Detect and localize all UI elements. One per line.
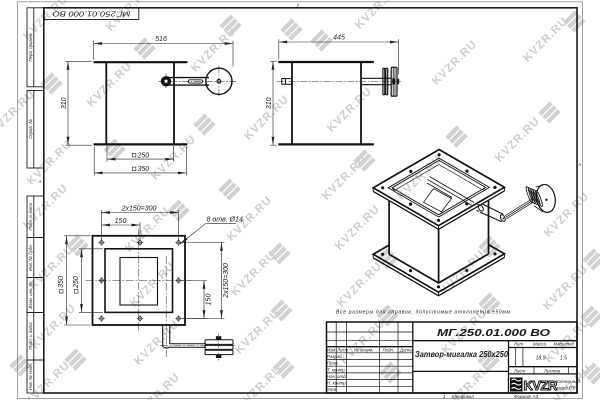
svg-text:KVZR.RU: KVZR.RU <box>29 302 79 352</box>
svg-text:KVZR: KVZR <box>524 378 559 393</box>
svg-text:150: 150 <box>206 294 213 306</box>
svg-text:250: 250 <box>73 276 80 289</box>
svg-text:Листов: Листов <box>543 368 561 373</box>
svg-text:1: 1 <box>443 394 446 399</box>
svg-text:KVZR.RU: KVZR.RU <box>128 260 178 310</box>
svg-text:МГ.250.01.000 ВО: МГ.250.01.000 ВО <box>437 328 550 339</box>
svg-text:Затвор-мигалка 250х250: Затвор-мигалка 250х250 <box>415 349 508 359</box>
svg-text:Разраб.: Разраб. <box>327 354 343 359</box>
svg-text:18,9: 18,9 <box>536 356 546 362</box>
svg-text:Т. контр.: Т. контр. <box>327 367 346 372</box>
svg-text:завод РЗП: завод РЗП <box>555 386 578 391</box>
svg-text:310: 310 <box>61 97 68 109</box>
svg-text:KVZR.RU: KVZR.RU <box>325 85 375 135</box>
svg-text:2х150=300: 2х150=300 <box>223 263 230 299</box>
svg-text:Инв. № дубл.: Инв. № дубл. <box>28 244 33 271</box>
svg-text:310: 310 <box>266 97 273 109</box>
svg-text:250: 250 <box>137 152 150 159</box>
svg-text:Н. контр.: Н. контр. <box>327 381 347 386</box>
svg-text:Дата: Дата <box>399 347 412 352</box>
svg-text:Копировал: Копировал <box>452 394 474 399</box>
svg-text:А: А <box>577 162 581 167</box>
svg-text:Лист: Лист <box>513 368 526 373</box>
svg-text:1:5: 1:5 <box>560 356 567 362</box>
svg-text:Масса: Масса <box>533 342 547 347</box>
svg-text:Котельный: Котельный <box>556 379 580 384</box>
svg-text:Подп.: Подп. <box>383 347 395 352</box>
svg-text:350: 350 <box>138 166 150 173</box>
svg-text:Перв. примен.: Перв. примен. <box>28 32 33 61</box>
svg-text:KVZR.RU: KVZR.RU <box>430 38 480 88</box>
svg-text:Взам. инв. №: Взам. инв. № <box>28 281 33 308</box>
svg-text:Формат А3: Формат А3 <box>514 394 539 399</box>
svg-text:Утв.: Утв. <box>327 387 337 392</box>
svg-text:Подп. и дата: Подп. и дата <box>28 202 33 230</box>
svg-text:KVZR.RU: KVZR.RU <box>335 260 385 310</box>
svg-text:Масштаб: Масштаб <box>554 342 575 347</box>
svg-text:Лист: Лист <box>336 347 349 352</box>
svg-text:МГ.250.01.000 ВО: МГ.250.01.000 ВО <box>52 9 131 16</box>
svg-text:445: 445 <box>333 35 345 42</box>
svg-text:KVZR.RU: KVZR.RU <box>521 15 571 65</box>
svg-text:KVZR.RU: KVZR.RU <box>353 0 403 32</box>
svg-text:у: у <box>296 2 300 7</box>
svg-text:Пров.: Пров. <box>327 361 339 366</box>
svg-text:150: 150 <box>115 218 127 225</box>
svg-text:А: А <box>38 179 42 184</box>
svg-text:KVZR.RU: KVZR.RU <box>85 60 135 110</box>
svg-text:Нач. отд.: Нач. отд. <box>327 374 347 379</box>
svg-text:KVZR.RU: KVZR.RU <box>493 115 543 165</box>
svg-text:KVZR.RU: KVZR.RU <box>541 263 591 313</box>
svg-text:Изм: Изм <box>327 347 335 352</box>
svg-text:KVZR.RU: KVZR.RU <box>333 203 383 253</box>
svg-text:№ докум.: № докум. <box>354 347 373 352</box>
svg-text:Инв. № подл.: Инв. № подл. <box>28 363 33 390</box>
svg-text:KVZR.RU: KVZR.RU <box>542 190 592 240</box>
svg-text:8 отв. Ø14: 8 отв. Ø14 <box>207 217 243 224</box>
svg-text:Подп. и дата: Подп. и дата <box>28 322 33 350</box>
svg-text:KVZR.RU: KVZR.RU <box>25 138 75 188</box>
svg-text:350: 350 <box>58 276 65 288</box>
svg-text:Лит.: Лит. <box>513 342 524 347</box>
svg-text:Все размеры для справок, допус: Все размеры для справок, допустимые откл… <box>336 310 512 316</box>
svg-text:KVZR.RU: KVZR.RU <box>133 371 183 400</box>
svg-text:516: 516 <box>155 36 167 43</box>
svg-text:KVZR.RU: KVZR.RU <box>438 248 488 298</box>
svg-text:2х150=300: 2х150=300 <box>121 205 157 212</box>
svg-text:Справ. №: Справ. № <box>28 119 33 139</box>
svg-text:KVZR.RU: KVZR.RU <box>27 243 77 293</box>
